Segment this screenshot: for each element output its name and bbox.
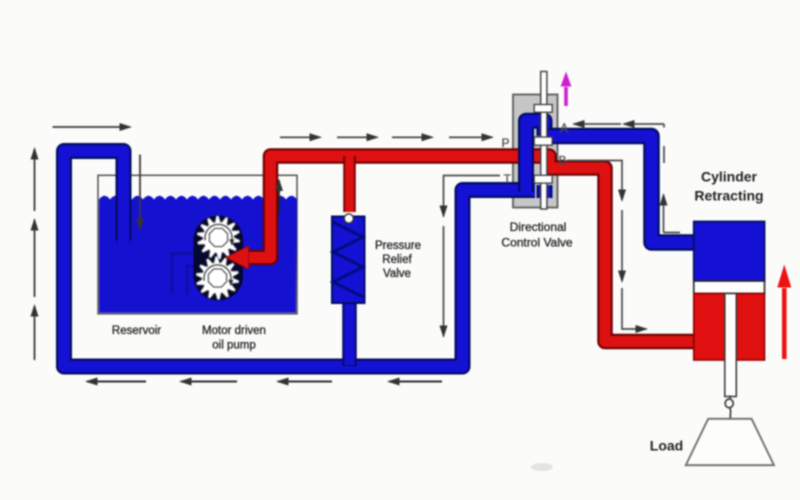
svg-text:oil pump: oil pump [212, 340, 255, 352]
svg-text:A: A [560, 122, 569, 136]
svg-text:Reservoir: Reservoir [112, 325, 161, 337]
svg-text:P: P [502, 136, 510, 150]
svg-text:Directional: Directional [510, 220, 567, 234]
svg-text:Valve: Valve [383, 268, 411, 280]
svg-text:T: T [504, 172, 512, 186]
svg-text:Retracting: Retracting [694, 188, 763, 204]
svg-text:Pressure: Pressure [375, 240, 421, 252]
svg-text:Cylinder: Cylinder [701, 169, 758, 185]
svg-text:B: B [559, 154, 567, 168]
svg-text:Motor driven: Motor driven [202, 325, 266, 337]
svg-text:Relief: Relief [382, 254, 412, 266]
svg-text:Control Valve: Control Valve [501, 236, 572, 250]
svg-text:Load: Load [650, 438, 683, 454]
